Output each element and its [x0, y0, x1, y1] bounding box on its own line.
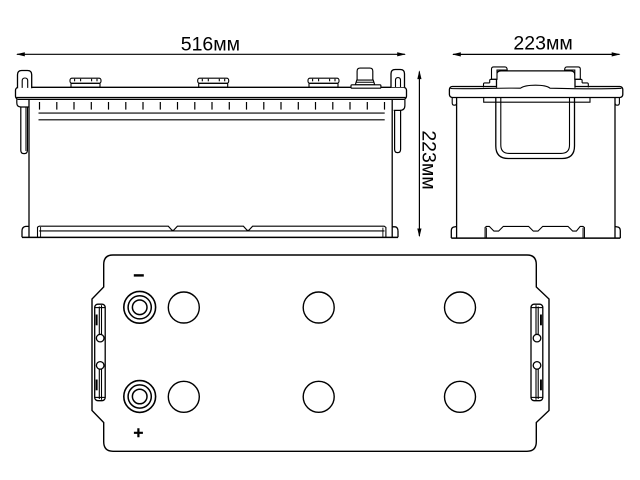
svg-text:223мм: 223мм	[418, 130, 440, 189]
svg-text:516мм: 516мм	[181, 34, 240, 56]
svg-text:223мм: 223мм	[513, 33, 572, 55]
